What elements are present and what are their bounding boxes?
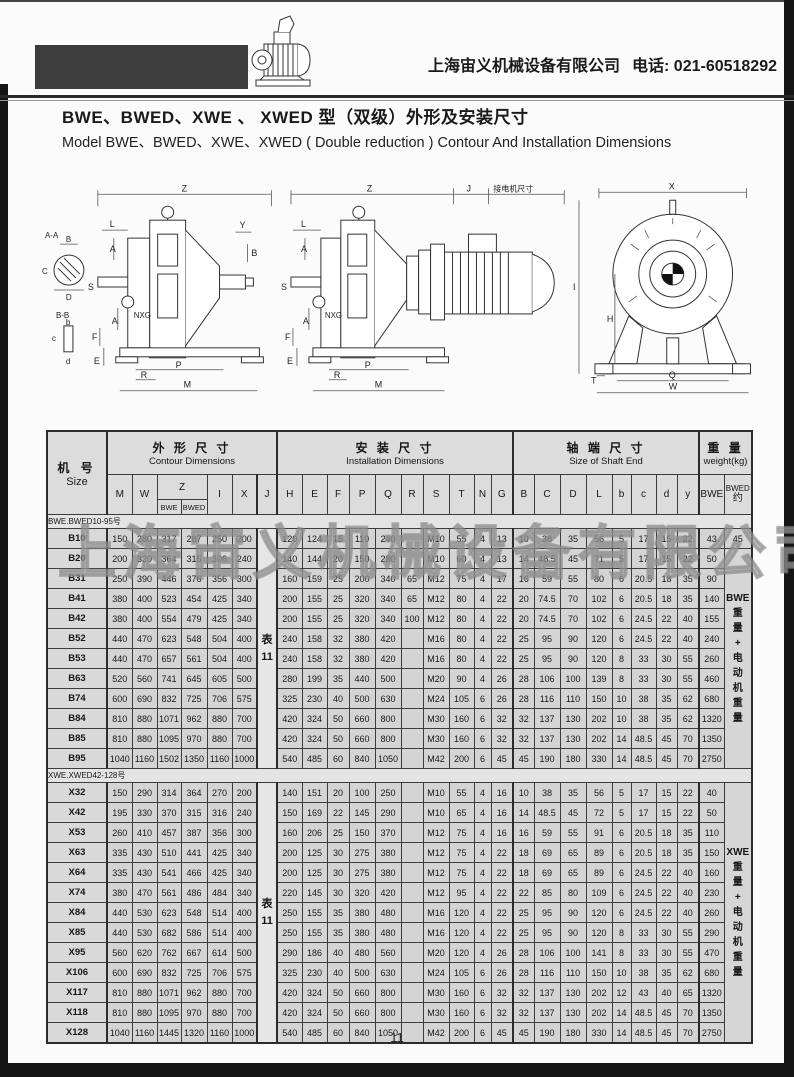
- table-cell: 43: [699, 529, 724, 549]
- table-cell: 105: [449, 689, 474, 709]
- table-cell: B41: [47, 589, 107, 609]
- table-cell: 441: [181, 843, 207, 863]
- table-cell: 35: [656, 709, 677, 729]
- table-cell: 106: [534, 943, 560, 963]
- svg-text:R: R: [334, 370, 341, 380]
- table-cell: 420: [277, 729, 302, 749]
- table-cell: 530: [132, 923, 157, 943]
- table-cell: 200: [277, 843, 302, 863]
- table-cell: M16: [423, 649, 449, 669]
- table-cell: 4: [474, 823, 491, 843]
- table-cell: 116: [534, 689, 560, 709]
- table-cell: 260: [699, 649, 724, 669]
- svg-text:b: b: [66, 318, 71, 327]
- table-cell: 200: [277, 609, 302, 629]
- table-cell: 6: [612, 569, 631, 589]
- table-cell: 700: [232, 983, 257, 1003]
- table-cell: 4: [474, 569, 491, 589]
- table-cell: 390: [132, 569, 157, 589]
- table-cell: 1000: [232, 749, 257, 769]
- table-cell: 810: [107, 983, 132, 1003]
- table-cell: 6: [612, 589, 631, 609]
- table-cell: 22: [491, 609, 513, 629]
- table-cell: 32: [491, 729, 513, 749]
- table-cell: 561: [181, 649, 207, 669]
- table-cell: 660: [349, 983, 375, 1003]
- table-cell: X85: [47, 923, 107, 943]
- table-cell: 48.5: [631, 729, 656, 749]
- table-cell: 370: [375, 823, 401, 843]
- table-cell: 614: [207, 943, 232, 963]
- table-cell: 85: [534, 883, 560, 903]
- table-cell: 62: [677, 709, 699, 729]
- table-cell: 40: [656, 983, 677, 1003]
- table-cell: [401, 923, 423, 943]
- table-cell: 190: [534, 749, 560, 769]
- table-cell: 560: [107, 943, 132, 963]
- table-cell: 317: [157, 529, 181, 549]
- table-cell: 70: [560, 589, 586, 609]
- table-cell: 55: [449, 529, 474, 549]
- table-cell: 48.5: [534, 549, 560, 569]
- table-cell: 160: [277, 569, 302, 589]
- table-row: X7438047056148648434022014530320420M1295…: [47, 883, 752, 903]
- table-cell: 14: [612, 749, 631, 769]
- table-cell: 410: [132, 823, 157, 843]
- svg-text:C: C: [42, 267, 48, 276]
- table-cell: 141: [586, 943, 612, 963]
- table-cell: 40: [327, 689, 349, 709]
- table-cell: 45: [656, 1003, 677, 1023]
- table-cell: 260: [107, 823, 132, 843]
- table-cell: 150: [107, 529, 132, 549]
- table-cell: 554: [157, 609, 181, 629]
- col-s: S: [423, 475, 449, 515]
- table-cell: 18: [656, 589, 677, 609]
- table-cell: 6: [474, 729, 491, 749]
- table-cell: 4: [474, 883, 491, 903]
- table-cell: 150: [349, 549, 375, 569]
- table-cell: X64: [47, 863, 107, 883]
- table-cell: 160: [277, 823, 302, 843]
- table-cell: 300: [232, 823, 257, 843]
- table-cell: 660: [349, 729, 375, 749]
- table-cell: 364: [181, 783, 207, 803]
- table-cell: 316: [207, 803, 232, 823]
- table-cell: 200: [232, 783, 257, 803]
- table-cell: 1160: [132, 749, 157, 769]
- table-cell: 623: [157, 629, 181, 649]
- table-cell: M12: [423, 863, 449, 883]
- table-cell: 4: [474, 669, 491, 689]
- table-cell: [401, 983, 423, 1003]
- table-cell: 40: [677, 609, 699, 629]
- table-row: B84810880107196288070042032450660800M301…: [47, 709, 752, 729]
- table-cell: 420: [277, 1003, 302, 1023]
- table-cell: 725: [181, 963, 207, 983]
- table-cell: 40: [677, 883, 699, 903]
- table-cell: 100: [349, 783, 375, 803]
- col-p: P: [349, 475, 375, 515]
- col-h: H: [277, 475, 302, 515]
- table-cell: B63: [47, 669, 107, 689]
- table-cell: 470: [132, 883, 157, 903]
- col-l: L: [586, 475, 612, 515]
- table-cell: 28: [513, 669, 534, 689]
- col-b: B: [513, 475, 534, 515]
- table-cell: 120: [449, 943, 474, 963]
- svg-text:A: A: [301, 244, 307, 254]
- table-cell: 30: [327, 883, 349, 903]
- table-cell: 340: [232, 863, 257, 883]
- table-cell: 706: [207, 963, 232, 983]
- table-cell: 62: [677, 963, 699, 983]
- table-cell: 250: [277, 903, 302, 923]
- table-cell: 250: [277, 923, 302, 943]
- table-row: X8544053068258651440025015535380480M1612…: [47, 923, 752, 943]
- table-cell: 32: [327, 649, 349, 669]
- table-cell: 35: [327, 923, 349, 943]
- table-cell: 832: [157, 963, 181, 983]
- table-cell: 75: [449, 569, 474, 589]
- table-cell: 380: [107, 883, 132, 903]
- table-cell: 470: [132, 629, 157, 649]
- table-cell: B95: [47, 749, 107, 769]
- section-row: BWE.BWED10-95号: [47, 515, 752, 529]
- table-cell: 4: [474, 629, 491, 649]
- table-cell: 504: [207, 649, 232, 669]
- table-cell: 324: [302, 1003, 327, 1023]
- table-cell: 55: [449, 783, 474, 803]
- table-cell: [401, 783, 423, 803]
- table-cell: 4: [474, 549, 491, 569]
- table-cell: 6: [474, 689, 491, 709]
- table-cell: 548: [181, 629, 207, 649]
- table-cell: 137: [534, 729, 560, 749]
- table-cell: 325: [277, 963, 302, 983]
- section-label: XWE.XWED42-128号: [47, 769, 752, 783]
- table-cell: 500: [349, 689, 375, 709]
- table-row: B2020032036431530624014014420150280M1060…: [47, 549, 752, 569]
- table-row: B10150280317287250200表 1112012415110240M…: [47, 529, 752, 549]
- table-cell: 74.5: [534, 589, 560, 609]
- table-cell: 6: [612, 629, 631, 649]
- table-cell: 240: [232, 803, 257, 823]
- table-cell: 18: [513, 843, 534, 863]
- svg-text:c: c: [52, 334, 56, 343]
- svg-text:B: B: [66, 235, 71, 244]
- table-cell: 22: [491, 649, 513, 669]
- table-cell: 605: [207, 669, 232, 689]
- table-cell: 425: [207, 609, 232, 629]
- col-w: W: [132, 475, 157, 515]
- table-cell: 623: [157, 903, 181, 923]
- table-cell: 表 11: [257, 783, 277, 1044]
- table-cell: 320: [349, 883, 375, 903]
- table-cell: 6: [474, 709, 491, 729]
- table-cell: 120: [277, 529, 302, 549]
- table-cell: 500: [375, 669, 401, 689]
- svg-text:L: L: [301, 219, 306, 229]
- table-cell: 16: [513, 569, 534, 589]
- svg-text:X: X: [668, 181, 674, 191]
- header-rule: [0, 95, 794, 98]
- table-cell: 250: [107, 569, 132, 589]
- table-cell: 430: [132, 843, 157, 863]
- col-weight-bwed: BWED 约: [724, 475, 752, 515]
- table-cell: 575: [232, 689, 257, 709]
- table-cell: M10: [423, 803, 449, 823]
- table-cell: 480: [375, 903, 401, 923]
- table-cell: 340: [375, 609, 401, 629]
- table-cell: 320: [349, 589, 375, 609]
- table-cell: 32: [513, 729, 534, 749]
- col-n: N: [474, 475, 491, 515]
- table-cell: 880: [132, 709, 157, 729]
- table-row: X10660069083272570657532523040500630M241…: [47, 963, 752, 983]
- header-dark-bar: [35, 45, 248, 89]
- table-cell: 4: [474, 843, 491, 863]
- table-cell: M20: [423, 669, 449, 689]
- table-cell: 28: [513, 963, 534, 983]
- svg-text:E: E: [287, 356, 293, 366]
- svg-text:Z: Z: [182, 183, 188, 193]
- table-cell: 13: [491, 549, 513, 569]
- table-cell: 22: [677, 803, 699, 823]
- table-cell: B74: [47, 689, 107, 709]
- table-cell: 65: [401, 569, 423, 589]
- svg-text:B: B: [251, 248, 257, 258]
- table-cell: 446: [157, 569, 181, 589]
- table-row: B6352056074164560550028019935440500M2090…: [47, 669, 752, 689]
- table-cell: 144: [302, 549, 327, 569]
- table-cell: 155: [699, 609, 724, 629]
- table-cell: 45: [560, 549, 586, 569]
- table-cell: 35: [327, 669, 349, 689]
- table-cell: 106: [534, 669, 560, 689]
- table-cell: 195: [107, 803, 132, 823]
- table-cell: 880: [132, 729, 157, 749]
- table-cell: 6: [474, 1003, 491, 1023]
- table-cell: 20.5: [631, 569, 656, 589]
- table-cell: B42: [47, 609, 107, 629]
- table-cell: 35: [656, 963, 677, 983]
- table-cell: 6: [612, 863, 631, 883]
- col-q: Q: [375, 475, 401, 515]
- col-z-bwe: BWE: [157, 500, 181, 515]
- table-cell: 95: [534, 923, 560, 943]
- table-cell: M12: [423, 883, 449, 903]
- table-cell: 38: [534, 783, 560, 803]
- table-cell: 200: [232, 529, 257, 549]
- table-cell: 40: [327, 943, 349, 963]
- table-cell: 33: [631, 649, 656, 669]
- section-label: BWE.BWED10-95号: [47, 515, 752, 529]
- col-j: J: [257, 475, 277, 515]
- table-cell: 110: [560, 689, 586, 709]
- table-cell: 50: [699, 803, 724, 823]
- table-cell: 800: [375, 1003, 401, 1023]
- table-cell: 514: [207, 903, 232, 923]
- table-cell: 33: [631, 669, 656, 689]
- table-cell: 30: [656, 923, 677, 943]
- col-y-lc: y: [677, 475, 699, 515]
- table-cell: 69: [534, 843, 560, 863]
- table-cell: 380: [349, 903, 375, 923]
- table-cell: 160: [449, 1003, 474, 1023]
- table-cell: 560: [375, 943, 401, 963]
- header-install-group: 安 装 尺 寸 Installation Dimensions: [277, 431, 513, 475]
- table-cell: 315: [181, 549, 207, 569]
- table-cell: 4: [474, 903, 491, 923]
- table-cell: 690: [132, 689, 157, 709]
- table-cell: 22: [656, 903, 677, 923]
- svg-text:R: R: [141, 370, 148, 380]
- table-cell: 22: [513, 883, 534, 903]
- table-cell: 22: [656, 883, 677, 903]
- table-cell: 169: [302, 803, 327, 823]
- table-cell: 30: [656, 669, 677, 689]
- table-cell: [401, 883, 423, 903]
- table-cell: 45: [656, 729, 677, 749]
- table-row: B4238040055447942534020015525320340100M1…: [47, 609, 752, 629]
- table-cell: 290: [699, 923, 724, 943]
- table-cell: 50: [699, 549, 724, 569]
- page-frame-top: [0, 0, 794, 2]
- table-header: 机 号 Size 外 形 尺 寸 Contour Dimensions 安 装 …: [47, 431, 752, 515]
- table-cell: 80: [449, 609, 474, 629]
- table-cell: 880: [207, 729, 232, 749]
- table-cell: M10: [423, 529, 449, 549]
- table-cell: 140: [699, 589, 724, 609]
- table-row: B5244047062354850440024015832380420M1680…: [47, 629, 752, 649]
- table-cell: 400: [132, 609, 157, 629]
- table-cell: 40: [677, 863, 699, 883]
- table-cell: 1502: [157, 749, 181, 769]
- page-subtitle: Model BWE、BWED、XWE、XWED ( Double reducti…: [62, 131, 671, 152]
- table-cell: 22: [491, 923, 513, 943]
- table-cell: 35: [560, 783, 586, 803]
- col-d-lc: d: [656, 475, 677, 515]
- table-cell: 55: [677, 649, 699, 669]
- table-cell: B52: [47, 629, 107, 649]
- table-cell: 420: [277, 709, 302, 729]
- table-cell: 280: [375, 549, 401, 569]
- table-cell: 95: [534, 903, 560, 923]
- table-cell: 159: [302, 569, 327, 589]
- table-cell: 24.5: [631, 903, 656, 923]
- table-cell: 17: [631, 549, 656, 569]
- table-row: X32150290314364270200表 1114015120100250M…: [47, 783, 752, 803]
- table-cell: 40: [327, 963, 349, 983]
- table-cell: 48.5: [534, 803, 560, 823]
- svg-text:Z: Z: [367, 183, 373, 193]
- table-cell: 150: [586, 963, 612, 983]
- table-cell: 110: [349, 529, 375, 549]
- table-cell: 440: [107, 923, 132, 943]
- table-cell: 25: [327, 569, 349, 589]
- table-cell: [401, 823, 423, 843]
- table-cell: 6: [612, 823, 631, 843]
- table-cell: 1050: [375, 749, 401, 769]
- table-cell: 200: [107, 549, 132, 569]
- table-cell: 1350: [699, 729, 724, 749]
- table-cell: 600: [107, 963, 132, 983]
- table-cell: 150: [277, 803, 302, 823]
- table-cell: M20: [423, 943, 449, 963]
- table-cell: 155: [302, 903, 327, 923]
- table-cell: 25: [513, 923, 534, 943]
- table-cell: 657: [157, 649, 181, 669]
- drawing-side-view-motor: Z J 接电机尺寸 L A S NXG A F E P: [279, 178, 570, 400]
- table-cell: 400: [232, 903, 257, 923]
- table-cell: 150: [586, 689, 612, 709]
- table-cell: 4: [474, 529, 491, 549]
- table-cell: 18: [656, 569, 677, 589]
- table-cell: 466: [181, 863, 207, 883]
- table-cell: 380: [107, 589, 132, 609]
- table-row: X8444053062354851440025015535380480M1612…: [47, 903, 752, 923]
- svg-text:Q: Q: [668, 370, 675, 380]
- table-cell: 1160: [207, 749, 232, 769]
- table-cell: 200: [277, 863, 302, 883]
- table-cell: 25: [327, 609, 349, 629]
- table-cell: 65: [401, 589, 423, 609]
- header-weight-group: 重 量 weight(kg): [699, 431, 752, 475]
- table-cell: 71: [586, 549, 612, 569]
- table-cell: 45: [560, 803, 586, 823]
- table-cell: 725: [181, 689, 207, 709]
- col-c-lc: c: [631, 475, 656, 515]
- table-cell: 20: [513, 589, 534, 609]
- table-cell: 59: [534, 569, 560, 589]
- table-cell: 120: [586, 649, 612, 669]
- table-cell: M30: [423, 709, 449, 729]
- col-z-bwed: BWED: [181, 500, 207, 515]
- table-cell: 290: [375, 803, 401, 823]
- table-cell: 8: [612, 669, 631, 689]
- table-cell: 690: [132, 963, 157, 983]
- table-cell: 22: [656, 609, 677, 629]
- table-cell: 10: [612, 689, 631, 709]
- drawing-front-view: X I H Q T W: [571, 178, 770, 400]
- table-cell: 832: [157, 689, 181, 709]
- table-cell: 110: [699, 823, 724, 843]
- table-cell: 700: [232, 729, 257, 749]
- header-contour-group: 外 形 尺 寸 Contour Dimensions: [107, 431, 277, 475]
- table-cell: 24.5: [631, 629, 656, 649]
- table-cell: 14: [513, 803, 534, 823]
- table-cell: 80: [586, 569, 612, 589]
- table-cell: 330: [586, 749, 612, 769]
- table-cell: 43: [631, 983, 656, 1003]
- table-cell: 470: [699, 943, 724, 963]
- table-cell: 55: [560, 823, 586, 843]
- svg-text:L: L: [110, 219, 115, 229]
- table-cell: 22: [491, 863, 513, 883]
- table-cell: 74.5: [534, 609, 560, 629]
- table-cell: 38: [534, 529, 560, 549]
- table-cell: 324: [302, 983, 327, 1003]
- table-cell: 24.5: [631, 609, 656, 629]
- svg-text:A: A: [110, 244, 116, 254]
- section-row: XWE.XWED42-128号: [47, 769, 752, 783]
- table-cell: 158: [302, 629, 327, 649]
- page-frame-bottom: [0, 1063, 794, 1077]
- table-cell: 484: [207, 883, 232, 903]
- table-cell: 8: [612, 649, 631, 669]
- table-cell: 8: [612, 943, 631, 963]
